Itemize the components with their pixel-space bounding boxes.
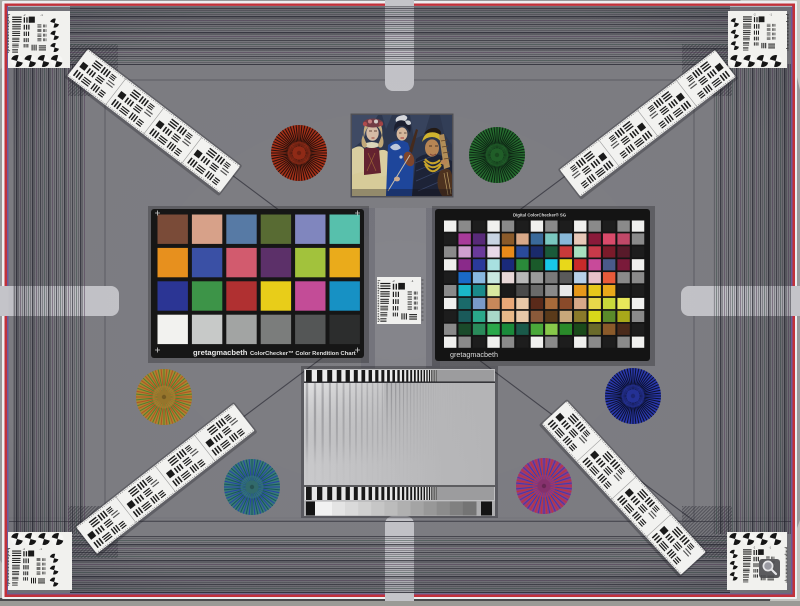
svg-text:-1: -1: [411, 279, 414, 283]
svg-text:-1: -1: [40, 13, 43, 17]
svg-text:-2: -2: [23, 13, 26, 17]
svg-text:gretagmacbeth: gretagmacbeth: [193, 348, 248, 357]
svg-text:-2: -2: [392, 279, 395, 283]
svg-text:-1: -1: [39, 547, 42, 551]
svg-text:gretagmacbeth: gretagmacbeth: [450, 350, 498, 359]
svg-text:Digital ColorChecker® SG: Digital ColorChecker® SG: [513, 213, 567, 218]
svg-text:-2: -2: [23, 547, 26, 551]
svg-text:ColorChecker™ Color Rendition: ColorChecker™ Color Rendition Chart: [250, 351, 356, 357]
